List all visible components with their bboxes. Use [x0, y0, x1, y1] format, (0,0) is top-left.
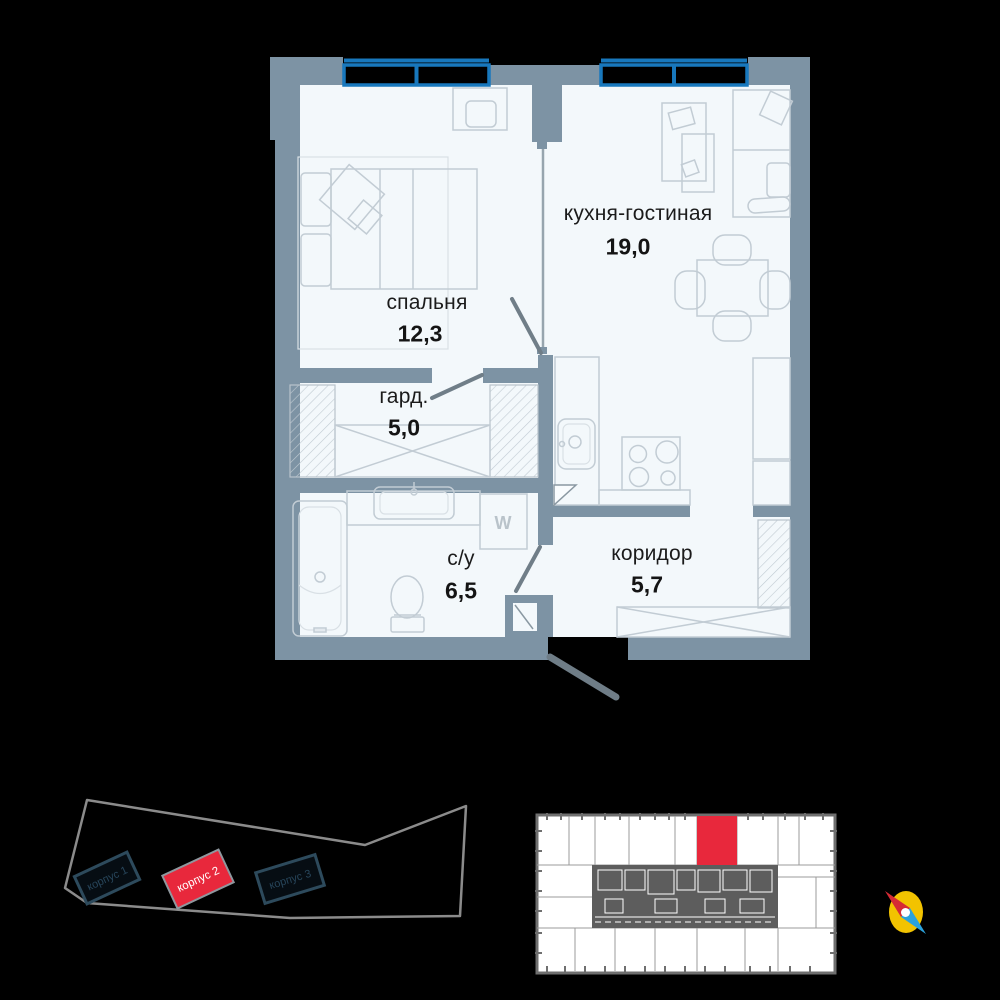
room-area-bedroom: 12,3 [398, 321, 443, 348]
building-core [592, 865, 778, 928]
floor-plate [535, 813, 837, 975]
floor-plan: W [270, 57, 810, 702]
compass-center-dot [901, 908, 910, 917]
building-3[interactable]: корпус 3 [256, 855, 325, 904]
apartment-floor [275, 65, 790, 637]
building-2-highlighted[interactable]: корпус 2 [162, 850, 233, 909]
washer-label: W [495, 513, 512, 533]
room-area-corridor: 5,7 [631, 572, 663, 599]
room-label-wardrobe: гард. [379, 385, 428, 409]
room-area-kitchen-living: 19,0 [606, 234, 651, 261]
window-kitchen [601, 61, 747, 86]
room-area-wardrobe: 5,0 [388, 415, 420, 442]
room-label-kitchen-living: кухня-гостиная [564, 202, 713, 226]
selected-unit[interactable] [697, 816, 737, 865]
room-area-bathroom: 6,5 [445, 578, 477, 605]
compass-icon [880, 885, 940, 945]
building-1[interactable]: корпус 1 [74, 852, 139, 904]
apartment-plan-page: W кухня-гостиная 19,0 спальня 12,3 гард.… [0, 0, 1000, 1000]
room-label-bedroom: спальня [386, 291, 467, 315]
site-plan: корпус 1 корпус 2 корпус 3 [55, 790, 475, 930]
entrance-door [550, 657, 616, 697]
entrance-niche [513, 603, 537, 631]
room-label-bathroom: с/у [447, 547, 474, 571]
room-label-corridor: коридор [611, 542, 693, 566]
window-bedroom [344, 61, 489, 86]
